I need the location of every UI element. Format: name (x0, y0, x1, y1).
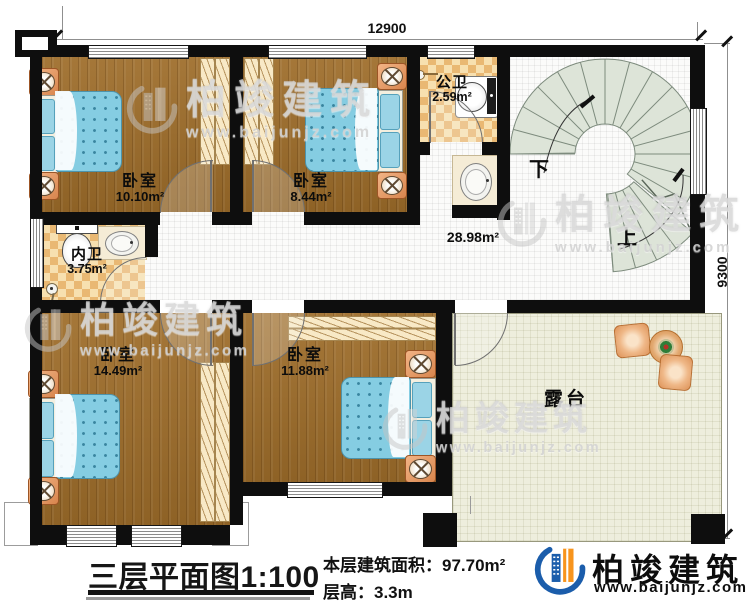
nightstand (405, 455, 436, 483)
tank-dot (490, 94, 493, 97)
stairs-down-label: 下 (529, 153, 549, 182)
brand-website: www.baijunjz.com (594, 579, 747, 596)
stairs-up-label: 上 (617, 221, 637, 250)
bedroom-tm-label: 卧室8.44m² (270, 173, 352, 204)
wall (452, 205, 510, 218)
wall (304, 212, 420, 225)
door-leaf (454, 313, 456, 365)
dim-right-label: 9300 (714, 245, 730, 299)
dim-top-ext-left (62, 6, 63, 39)
nightstand (377, 63, 407, 90)
terrace-join-line (470, 496, 471, 514)
wall (30, 45, 42, 545)
nightstand (377, 172, 407, 199)
bedroom-tl-label: 卧室10.10m² (99, 173, 181, 204)
wall (482, 142, 497, 155)
terrace-post (691, 514, 725, 544)
floor-area-note: 本层建筑面积：97.70m² (323, 551, 505, 576)
terrace-chair (613, 322, 651, 358)
window (88, 45, 189, 59)
faucet (130, 241, 133, 244)
wardrobe (288, 316, 436, 341)
bed-blanket (55, 91, 77, 170)
pillow (380, 132, 400, 168)
bedroom-bl-label: 卧室14.49m² (77, 347, 159, 378)
wall (30, 525, 230, 545)
door-leaf (210, 160, 212, 212)
dim-top-line (57, 39, 703, 40)
pillow (412, 420, 432, 456)
terrace-label: 露台 (544, 384, 588, 411)
brand-logo-icon (534, 540, 586, 600)
wall (304, 300, 452, 313)
title-underline-shadow (86, 597, 310, 600)
terrace-chair (658, 354, 694, 392)
shower-dot (50, 287, 53, 290)
wall (452, 300, 455, 313)
wall (30, 300, 160, 313)
window (427, 45, 475, 59)
wall (30, 212, 160, 225)
sink-basin-inner (465, 169, 487, 195)
hallway-area-label: 28.98m² (440, 230, 506, 245)
wall (407, 142, 430, 155)
window (690, 108, 707, 195)
wall (230, 313, 243, 525)
door-leaf (210, 313, 212, 365)
wall (230, 57, 243, 212)
bed-blanket (388, 377, 409, 457)
wall (436, 313, 452, 496)
window (66, 525, 117, 547)
terrace-post (423, 513, 457, 547)
wardrobe (200, 362, 230, 522)
bed-blanket (355, 88, 377, 170)
bedroom-bm-label: 卧室11.88m² (264, 347, 346, 378)
ensuite-bath-label: 内卫3.75m² (57, 247, 117, 277)
window (131, 525, 182, 547)
dim-top-label: 12900 (357, 20, 417, 36)
title-underline (88, 590, 314, 595)
flue-opening (22, 37, 48, 50)
wardrobe (244, 58, 274, 165)
nightstand (405, 350, 436, 378)
window (287, 482, 383, 498)
pillow (412, 382, 432, 418)
bed-blanket (55, 394, 77, 477)
wardrobe (200, 58, 230, 165)
pillow (380, 94, 400, 130)
wall (212, 212, 252, 225)
floor-height-note: 层高：3.3m (323, 578, 413, 603)
window (30, 218, 44, 288)
door-leaf (252, 313, 254, 365)
public-bath-label: 公卫2.59m² (422, 75, 482, 105)
wall (507, 300, 705, 313)
door-leaf (252, 160, 254, 212)
wall (497, 45, 510, 220)
window (268, 45, 367, 59)
wall (145, 212, 158, 257)
wall (212, 300, 252, 313)
faucet (486, 179, 489, 182)
wall (407, 57, 420, 212)
floor-plan: 12900 9300 (0, 0, 750, 605)
